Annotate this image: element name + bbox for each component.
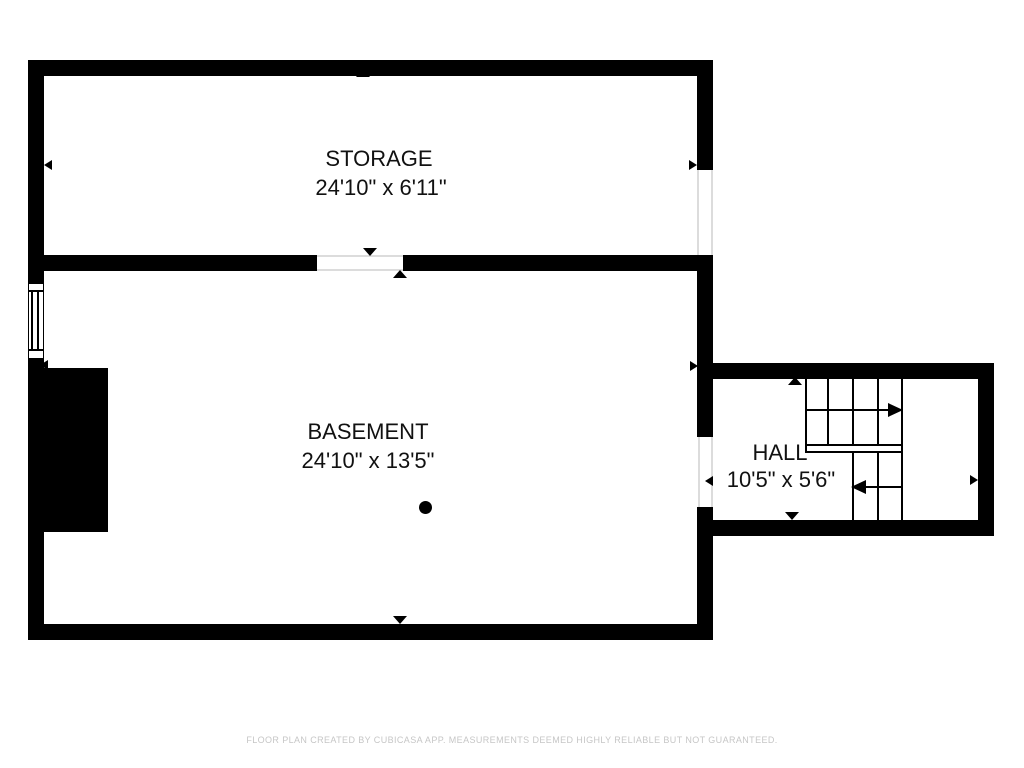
measure-arrow-left-icon (44, 160, 52, 170)
window-pane-line (37, 291, 39, 350)
wall-hall-right (978, 363, 994, 536)
measure-arrow-up-icon (788, 377, 802, 385)
wall-right-storage (697, 60, 713, 170)
measure-arrow-left-icon (705, 476, 713, 486)
opening-hall-door-line (711, 437, 713, 507)
stair-tread (877, 379, 879, 444)
wall-hall-bottom (713, 520, 994, 536)
wall-divider-left (44, 255, 317, 271)
footer-disclaimer: FLOOR PLAN CREATED BY CUBICASA APP. MEAS… (0, 735, 1024, 745)
opening-divider-line (317, 269, 403, 271)
room-dimensions-basement: 24'10" x 13'5" (302, 450, 435, 472)
room-label-basement: BASEMENT (307, 421, 428, 443)
floor-plan: STORAGE 24'10" x 6'11" BASEMENT 24'10" x… (0, 0, 1024, 768)
measure-arrow-up-icon (356, 69, 370, 77)
stair-tread (852, 379, 854, 444)
stair-tread (827, 379, 829, 444)
stair-arrow-right-icon (888, 403, 903, 417)
opening-divider-line (317, 255, 403, 257)
wall-divider-right (403, 255, 697, 271)
measure-arrow-down-icon (785, 512, 799, 520)
wall-left-upper (28, 60, 44, 283)
measure-arrow-up-icon (393, 270, 407, 278)
opening-storage-right-line (697, 170, 699, 255)
chimney-block (28, 368, 108, 532)
opening-storage-right-line (711, 170, 713, 255)
measure-arrow-down-icon (393, 616, 407, 624)
stair-arrow-shaft (866, 486, 902, 488)
wall-right-lower (697, 507, 713, 640)
room-label-storage: STORAGE (325, 148, 432, 170)
wall-hall-top (713, 363, 994, 379)
opening-hall-door-line (698, 437, 700, 507)
wall-bottom (28, 624, 713, 640)
wall-top (28, 60, 713, 76)
wall-right-middle (697, 255, 713, 437)
stair-arrow-shaft (805, 409, 890, 411)
stair-edge (805, 379, 807, 444)
measure-arrow-right-icon (970, 475, 978, 485)
stair-arrow-left-icon (851, 480, 866, 494)
measure-arrow-right-icon (690, 361, 698, 371)
measure-arrow-down-icon (363, 248, 377, 256)
room-dimensions-hall: 10'5" x 5'6" (727, 469, 835, 491)
measure-arrow-right-icon (689, 160, 697, 170)
measure-arrow-left-icon (40, 360, 48, 370)
room-label-hall: HALL (752, 442, 807, 464)
column-dot (419, 501, 432, 514)
room-dimensions-storage: 24'10" x 6'11" (315, 177, 446, 199)
stair-landing (805, 444, 903, 453)
window-pane-line (31, 291, 33, 350)
